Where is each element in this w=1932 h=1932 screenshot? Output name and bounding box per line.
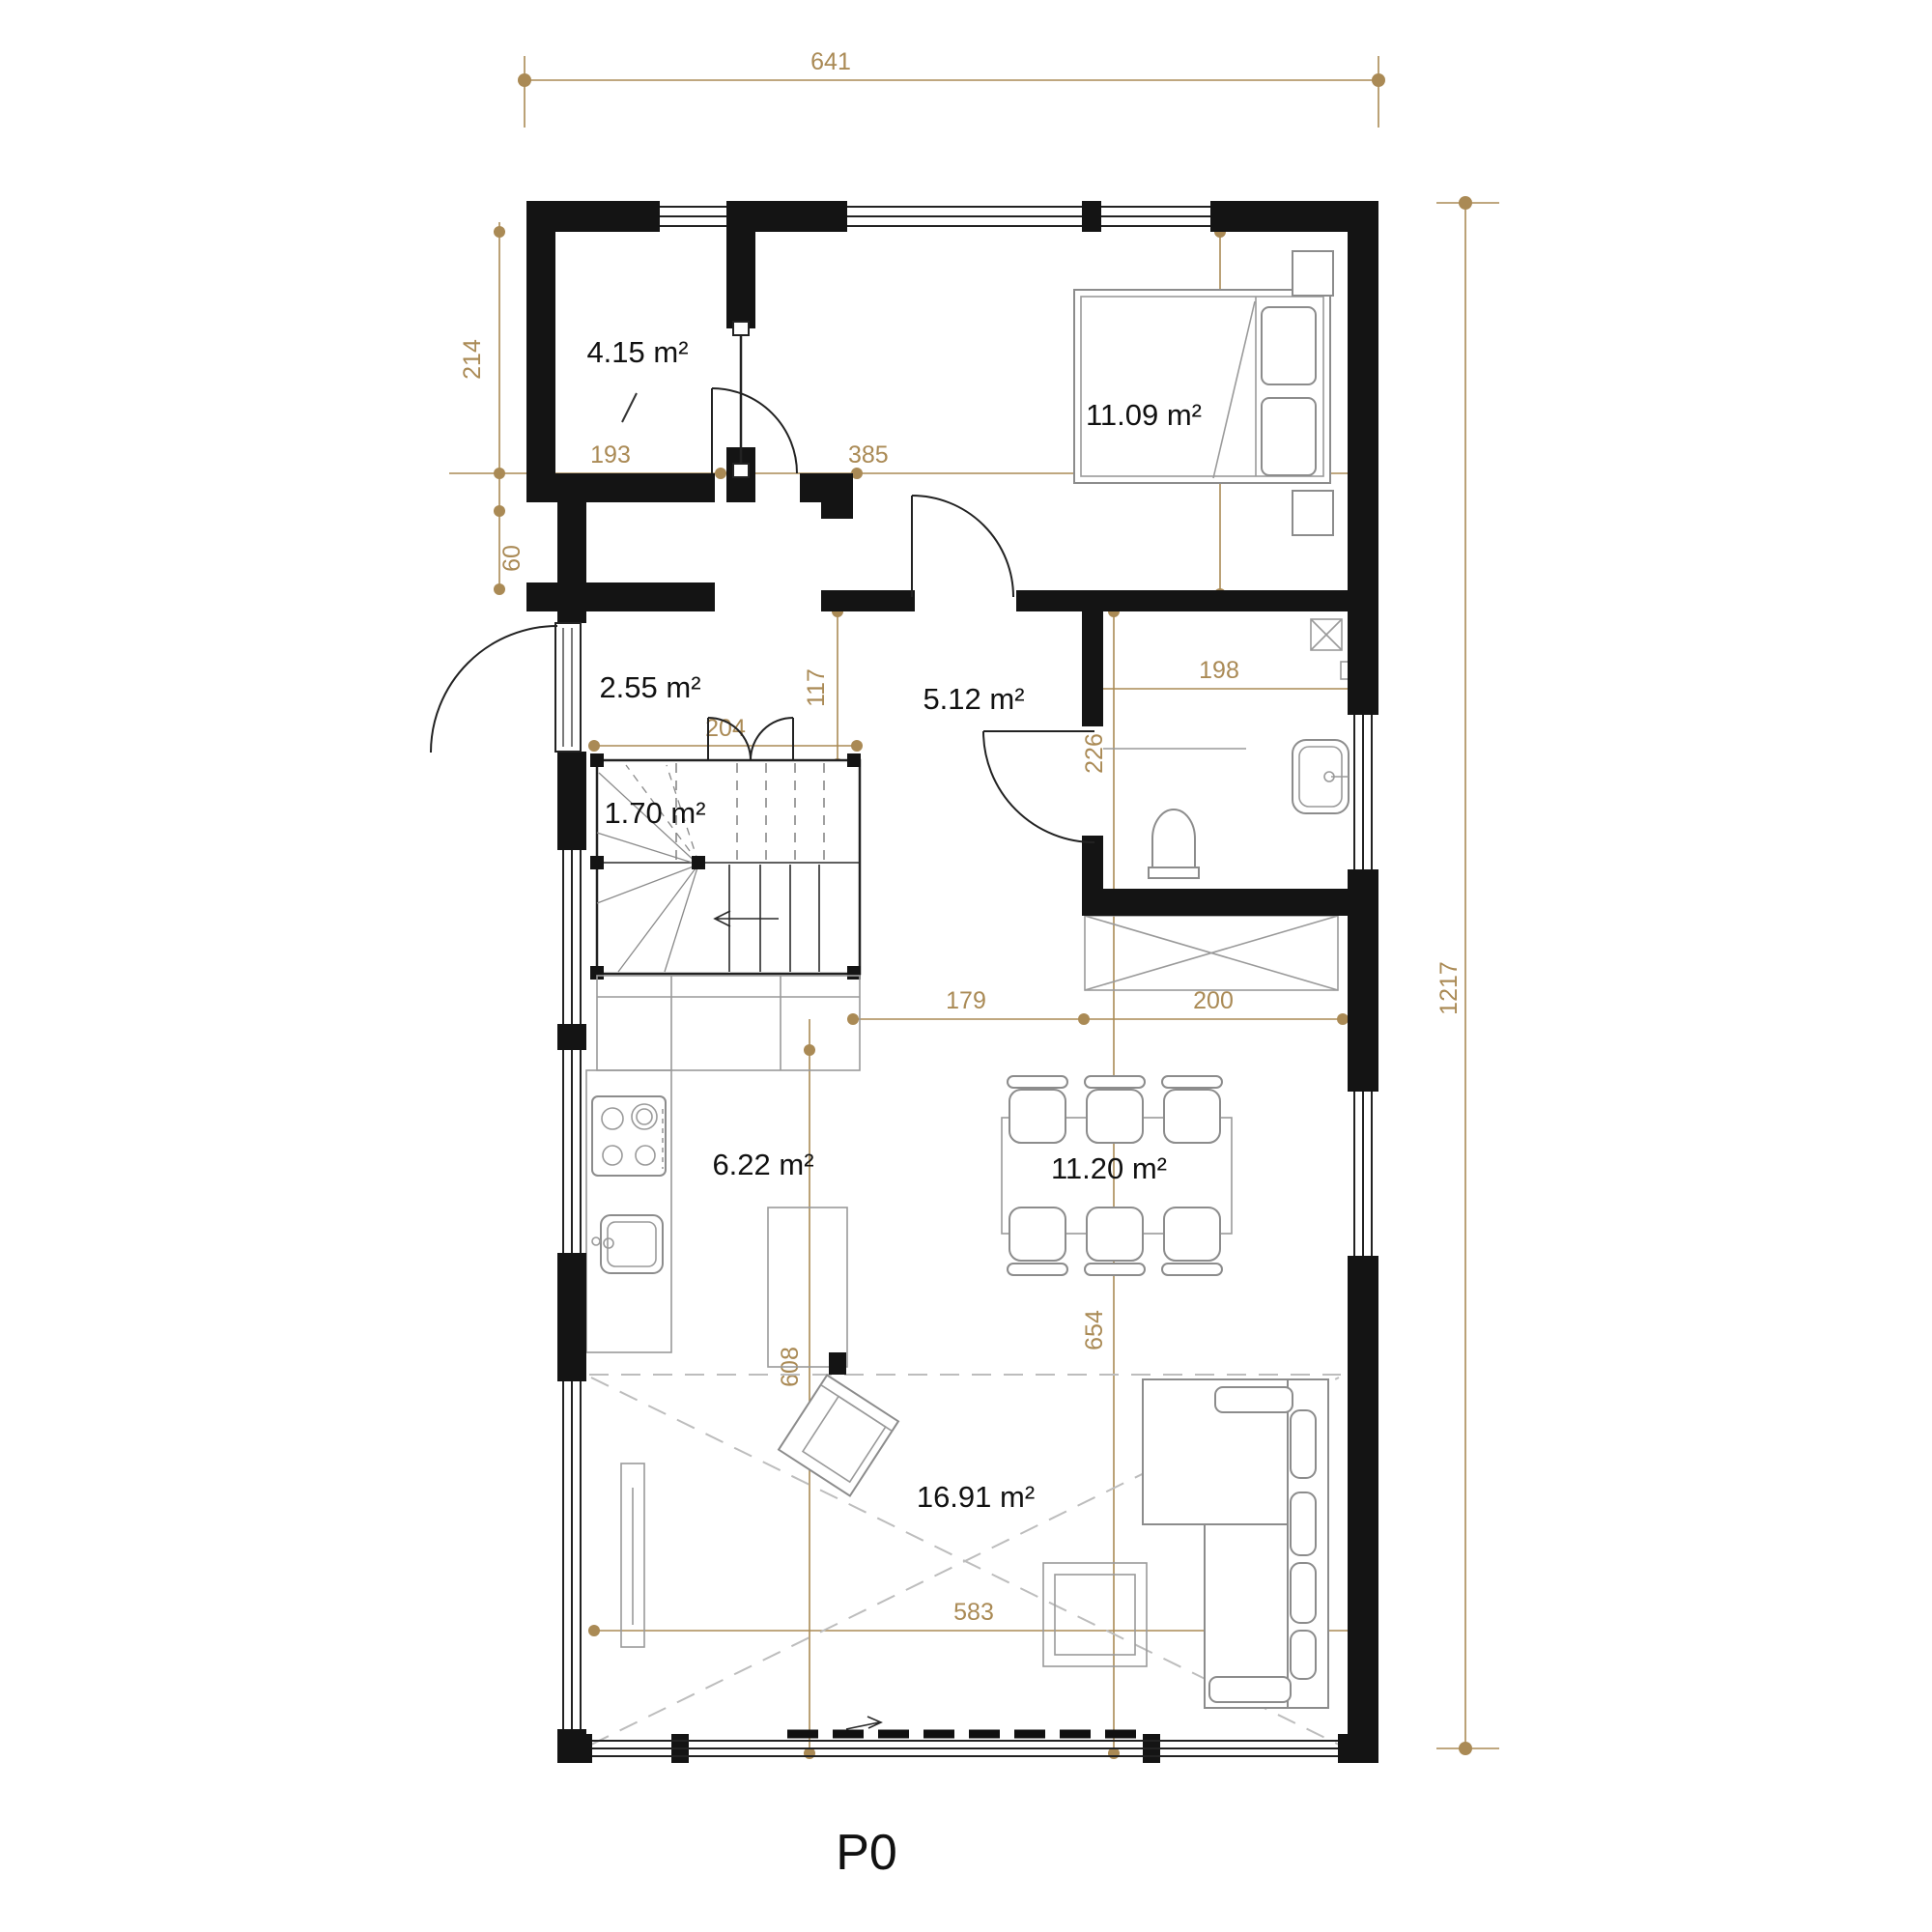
bathroom-door: [983, 731, 1094, 842]
dim-dot: [715, 468, 726, 479]
wall-bottom-corner: [557, 1734, 592, 1763]
chair-seat: [1009, 1090, 1065, 1143]
wall-left-above-door: [557, 611, 586, 623]
dim-dot: [494, 583, 505, 595]
living-furniture: [621, 1375, 1328, 1708]
wall-storage-bottom: [526, 473, 715, 502]
pillow: [1262, 307, 1316, 384]
toilet-bowl: [1152, 810, 1195, 869]
dim-label-living-width: 583: [953, 1599, 994, 1626]
wall-bedroom-bottom: [1016, 590, 1348, 611]
room-label-bedroom: 11.09 m²: [1086, 398, 1202, 432]
wall-top-pier: [1082, 201, 1101, 232]
chair-back: [1008, 1076, 1067, 1088]
wall-left: [557, 752, 586, 850]
window-top-2: [847, 201, 1082, 232]
dim-dot: [1078, 1013, 1090, 1025]
sofa-pillow: [1215, 1387, 1293, 1412]
room-label-kitchen: 6.22 m²: [712, 1148, 813, 1181]
dim-label-overall-height: 1217: [1435, 961, 1463, 1015]
wall-left: [557, 1024, 586, 1050]
chair-seat: [1087, 1090, 1143, 1143]
floor-title: P0: [836, 1825, 897, 1881]
chair-back: [1008, 1264, 1067, 1275]
window-top-1: [660, 201, 737, 232]
dim-label-bedroom-width: 385: [848, 441, 889, 469]
dim-label-overall-width: 641: [810, 48, 851, 75]
bedroom-door: [912, 496, 1013, 597]
coffee-table: [1043, 1563, 1147, 1666]
dim-dot: [494, 226, 505, 238]
sofa-pillow: [1209, 1677, 1291, 1702]
sofa-cushion: [1291, 1563, 1316, 1623]
wall-entry-top: [526, 582, 715, 611]
sofa-cushion: [1291, 1410, 1316, 1478]
wall-storage-bedroom: [726, 201, 755, 328]
pillow: [1262, 398, 1316, 475]
wall-bathroom-left: [1082, 836, 1103, 894]
dim-label-storage-height: 214: [459, 339, 486, 380]
dim-dot: [1459, 196, 1472, 210]
sliding-door-arrow: [846, 1717, 881, 1729]
window-top-3: [1101, 201, 1210, 232]
wall-left-upper: [526, 201, 555, 473]
stair-post: [847, 753, 861, 767]
dim-dot: [851, 740, 863, 752]
stair-post: [847, 966, 861, 980]
dim-dot: [518, 73, 531, 87]
nightstand: [1293, 251, 1333, 296]
chair-back: [1085, 1264, 1145, 1275]
coffee-table-inner: [1055, 1575, 1135, 1655]
wall-right: [1348, 201, 1378, 715]
dim-dot: [847, 1013, 859, 1025]
chair-seat: [1164, 1090, 1220, 1143]
nightstand: [1293, 491, 1333, 535]
sofa-cushion: [1291, 1492, 1316, 1555]
window-right-dining: [1354, 1092, 1372, 1256]
dim-label-hall-width: 179: [946, 987, 986, 1014]
dim-label-dining-span: 654: [1081, 1310, 1108, 1350]
chair-back: [1085, 1076, 1145, 1088]
bifold-swing: [751, 718, 793, 760]
toilet-tank: [1149, 867, 1199, 878]
stair-post: [692, 856, 705, 869]
dim-label-closet-width: 200: [1193, 987, 1234, 1014]
dim-dot: [1337, 1013, 1349, 1025]
dim-label-entry-width: 204: [705, 715, 746, 742]
window-bottom-glazing: [592, 1717, 1338, 1756]
dim-dot: [494, 505, 505, 517]
wall-right: [1348, 1256, 1378, 1734]
floor-plan-page: 641 1217 193 385 214 60 288 204: [0, 0, 1932, 1932]
entry-door: [431, 623, 581, 753]
dim-label-storage-width: 193: [590, 441, 631, 469]
chair-seat: [1009, 1207, 1065, 1261]
entry-door-leaf: [555, 623, 581, 752]
pocket-door-handle: [733, 464, 749, 477]
bedroom-furniture: [1074, 251, 1333, 535]
wall-bottom-corner: [1338, 1734, 1378, 1763]
room-label-entry: 2.55 m²: [599, 670, 700, 704]
room-label-dining: 11.20 m²: [1051, 1151, 1167, 1185]
wall-bedroom-bottom: [821, 590, 915, 611]
kitchen-fixtures: [586, 1070, 847, 1375]
chair-seat: [1087, 1207, 1143, 1261]
stair-post: [590, 753, 604, 767]
chair-seat: [1164, 1207, 1220, 1261]
dim-dot: [588, 1625, 600, 1636]
floor-plan-canvas: 641 1217 193 385 214 60 288 204: [0, 0, 1932, 1932]
dim-dot: [1459, 1742, 1472, 1755]
dim-dot: [1372, 73, 1385, 87]
dim-label-bathroom-width: 198: [1199, 657, 1239, 684]
room-label-living: 16.91 m²: [917, 1480, 1035, 1514]
pocket-door-handle: [733, 322, 749, 335]
window-right-bathroom: [1354, 715, 1372, 869]
dim-dot: [588, 740, 600, 752]
room-label-stairs: 1.70 m²: [604, 796, 705, 830]
room-label-hall: 5.12 m²: [923, 682, 1024, 716]
wall-bathroom-left: [1082, 611, 1103, 726]
understair-counter: [597, 976, 860, 1070]
kitchen-faucet: [592, 1237, 600, 1245]
dim-label-bathroom-height: 226: [1081, 733, 1108, 774]
dim-label-stair-offset: 117: [803, 668, 830, 707]
sofa-cushion: [1291, 1631, 1316, 1679]
storage-leader-mark: [622, 393, 637, 422]
bedroom-door-swing: [912, 496, 1013, 597]
stair-outline: [597, 760, 860, 974]
entry-door-swing: [431, 626, 557, 753]
chair-back: [1162, 1076, 1222, 1088]
island-handle: [829, 1352, 846, 1375]
wall-bathroom-bottom: [1082, 889, 1348, 916]
dim-label-niche-height: 60: [498, 545, 526, 572]
wall-left: [557, 1253, 586, 1381]
kitchen-island: [768, 1207, 847, 1367]
dim-dot: [804, 1044, 815, 1056]
wall-right: [1348, 869, 1378, 1092]
wall-stub: [821, 473, 853, 519]
room-label-storage: 4.15 m²: [586, 335, 688, 369]
chair-back: [1162, 1264, 1222, 1275]
window-left-living: [563, 1381, 581, 1729]
stair-post: [590, 856, 604, 869]
window-left-kitchen: [563, 1050, 581, 1253]
window-left-stair: [563, 850, 581, 1024]
bathroom-door-swing: [983, 731, 1094, 842]
